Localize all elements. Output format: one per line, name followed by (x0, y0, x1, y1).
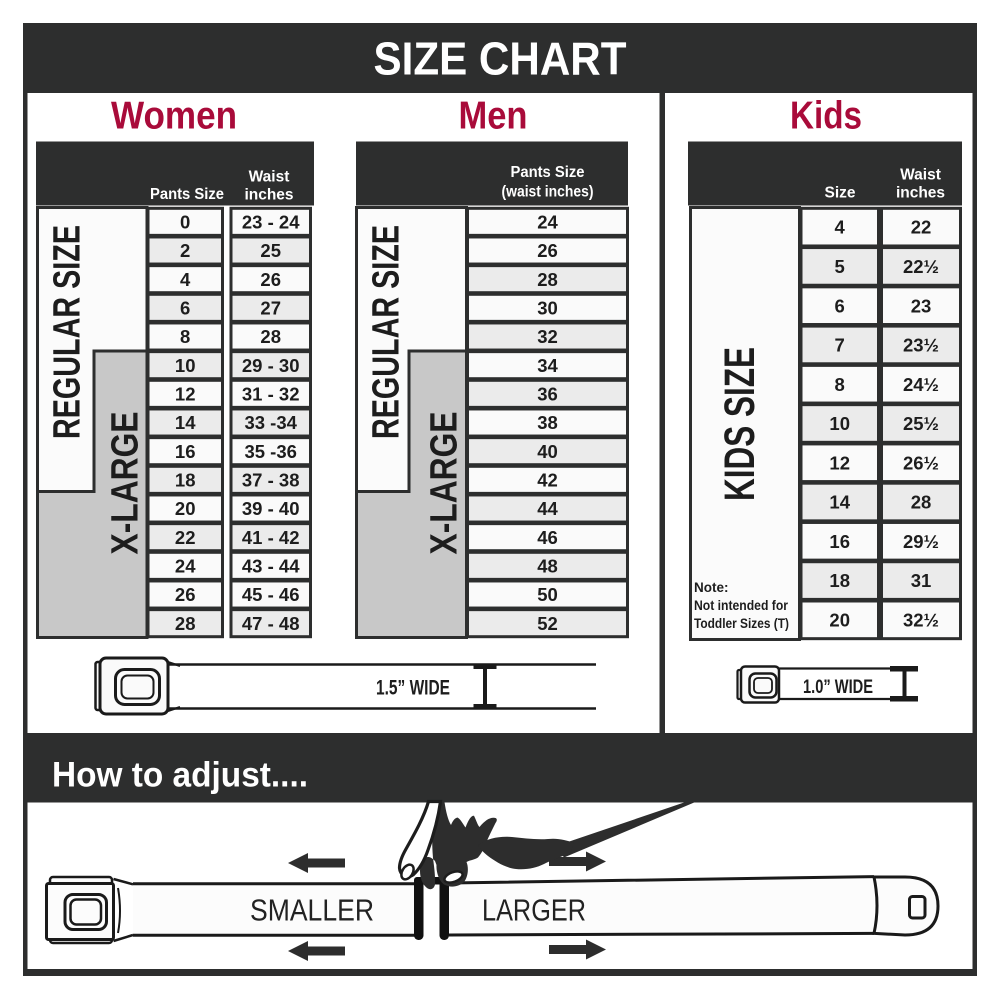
svg-text:31: 31 (911, 570, 932, 591)
svg-text:23 - 24: 23 - 24 (242, 211, 300, 232)
svg-text:14: 14 (829, 492, 850, 513)
svg-text:30: 30 (537, 297, 558, 318)
svg-text:16: 16 (175, 441, 196, 462)
svg-text:Waist: Waist (900, 167, 941, 184)
svg-text:50: 50 (537, 584, 558, 605)
svg-text:41 - 42: 41 - 42 (242, 527, 300, 548)
svg-text:LARGER: LARGER (482, 894, 586, 928)
svg-text:12: 12 (829, 452, 850, 473)
svg-text:Pants Size: Pants Size (511, 164, 585, 181)
svg-text:1.0” WIDE: 1.0” WIDE (803, 676, 873, 698)
svg-text:SIZE CHART: SIZE CHART (374, 33, 627, 85)
svg-text:36: 36 (537, 383, 558, 404)
svg-text:28: 28 (175, 613, 196, 634)
svg-text:29½: 29½ (903, 531, 939, 552)
svg-text:inches: inches (896, 185, 945, 202)
svg-text:28: 28 (911, 492, 932, 513)
svg-text:X-LARGE: X-LARGE (424, 412, 466, 555)
svg-text:23½: 23½ (903, 335, 939, 356)
svg-text:26: 26 (537, 240, 558, 261)
svg-text:47 - 48: 47 - 48 (242, 613, 300, 634)
svg-text:5: 5 (835, 256, 845, 277)
svg-text:28: 28 (537, 269, 558, 290)
svg-text:X-LARGE: X-LARGE (105, 412, 147, 555)
svg-text:38: 38 (537, 412, 558, 433)
svg-text:34: 34 (537, 355, 558, 376)
svg-text:Note:: Note: (694, 580, 729, 595)
svg-text:29 - 30: 29 - 30 (242, 355, 300, 376)
svg-text:24: 24 (175, 555, 196, 576)
svg-text:18: 18 (175, 469, 196, 490)
svg-text:1.5” WIDE: 1.5” WIDE (376, 677, 450, 700)
svg-text:52: 52 (537, 613, 558, 634)
svg-text:Waist: Waist (249, 169, 290, 186)
svg-text:8: 8 (835, 374, 845, 395)
svg-text:Toddler Sizes (T): Toddler Sizes (T) (694, 616, 789, 631)
svg-text:7: 7 (835, 335, 845, 356)
svg-text:45 - 46: 45 - 46 (242, 584, 300, 605)
svg-text:Kids: Kids (790, 95, 862, 138)
svg-text:6: 6 (180, 297, 190, 318)
svg-text:32½: 32½ (903, 609, 939, 630)
svg-text:43 - 44: 43 - 44 (242, 555, 300, 576)
svg-text:26: 26 (260, 269, 281, 290)
svg-text:39 - 40: 39 - 40 (242, 498, 300, 519)
svg-text:(waist inches): (waist inches) (502, 184, 594, 201)
svg-text:25½: 25½ (903, 413, 939, 434)
svg-text:48: 48 (537, 555, 558, 576)
svg-text:2: 2 (180, 240, 190, 261)
svg-text:26: 26 (175, 584, 196, 605)
svg-text:16: 16 (829, 531, 850, 552)
svg-text:6: 6 (835, 295, 845, 316)
svg-text:12: 12 (175, 383, 196, 404)
svg-text:22: 22 (911, 217, 932, 238)
svg-text:4: 4 (835, 217, 846, 238)
svg-text:REGULAR SIZE: REGULAR SIZE (366, 225, 408, 439)
svg-text:24½: 24½ (903, 374, 939, 395)
svg-text:10: 10 (829, 413, 850, 434)
svg-text:24: 24 (537, 211, 558, 232)
svg-text:Size: Size (824, 185, 855, 202)
svg-text:27: 27 (260, 297, 281, 318)
svg-text:42: 42 (537, 469, 558, 490)
svg-text:23: 23 (911, 295, 932, 316)
svg-text:26½: 26½ (903, 452, 939, 473)
svg-text:32: 32 (537, 326, 558, 347)
svg-text:10: 10 (175, 355, 196, 376)
svg-text:Women: Women (111, 95, 237, 138)
svg-text:0: 0 (180, 211, 190, 232)
svg-text:46: 46 (537, 527, 558, 548)
svg-text:31 - 32: 31 - 32 (242, 383, 300, 404)
svg-text:Pants Size: Pants Size (150, 186, 224, 203)
svg-text:33 -34: 33 -34 (244, 412, 297, 433)
svg-text:4: 4 (180, 269, 191, 290)
svg-text:40: 40 (537, 441, 558, 462)
svg-text:28: 28 (260, 326, 281, 347)
svg-text:25: 25 (260, 240, 281, 261)
svg-text:22: 22 (175, 527, 196, 548)
svg-text:20: 20 (175, 498, 196, 519)
svg-text:18: 18 (829, 570, 850, 591)
svg-text:35 -36: 35 -36 (244, 441, 296, 462)
svg-text:22½: 22½ (903, 256, 939, 277)
svg-text:inches: inches (244, 187, 293, 204)
svg-text:20: 20 (829, 609, 850, 630)
svg-text:SMALLER: SMALLER (250, 894, 374, 928)
svg-text:REGULAR SIZE: REGULAR SIZE (47, 225, 89, 439)
svg-text:8: 8 (180, 326, 190, 347)
svg-text:Not intended for: Not intended for (694, 598, 789, 613)
svg-text:14: 14 (175, 412, 196, 433)
svg-text:KIDS SIZE: KIDS SIZE (716, 347, 764, 501)
svg-text:44: 44 (537, 498, 558, 519)
svg-text:37 - 38: 37 - 38 (242, 469, 300, 490)
svg-text:Men: Men (459, 95, 528, 138)
svg-text:How to adjust....: How to adjust.... (52, 756, 308, 795)
